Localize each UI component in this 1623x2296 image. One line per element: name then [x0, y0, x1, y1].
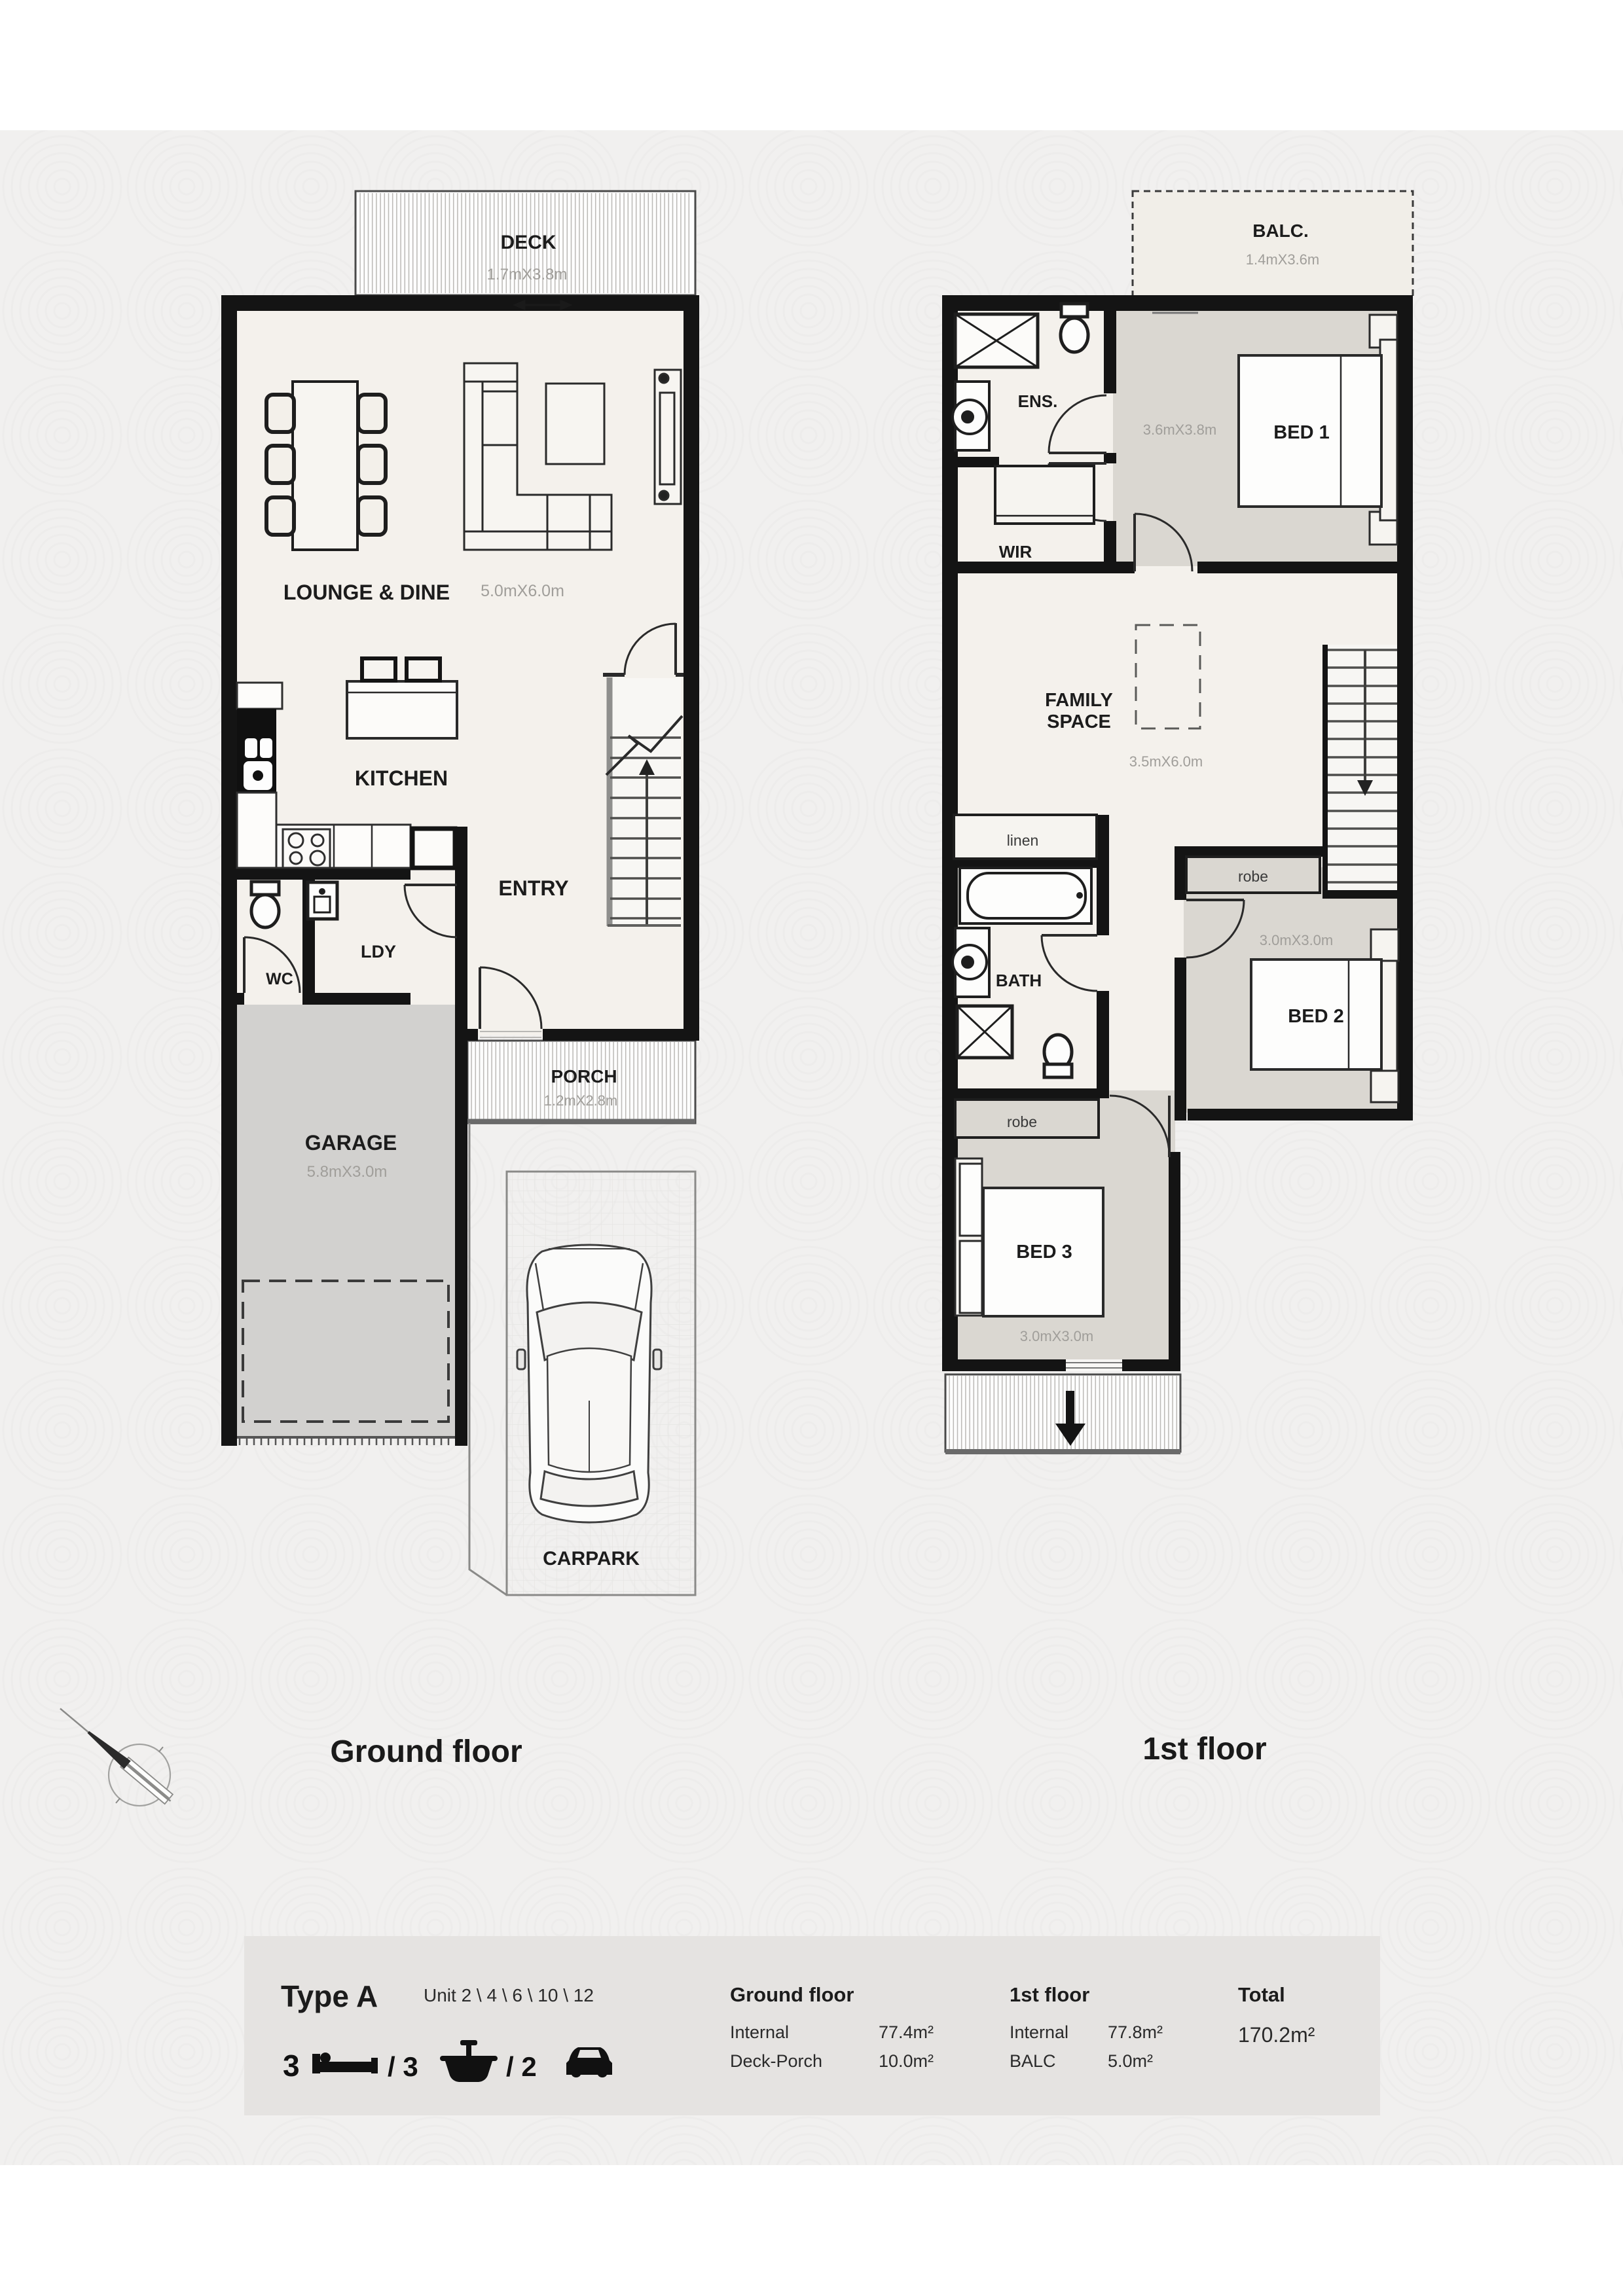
svg-text:1st floor: 1st floor	[1142, 1732, 1266, 1767]
svg-text:Unit 2 \ 4 \ 6 \ 10 \ 12: Unit 2 \ 4 \ 6 \ 10 \ 12	[424, 1985, 594, 2005]
svg-text:CARPARK: CARPARK	[543, 1548, 640, 1570]
svg-text:1st floor: 1st floor	[1010, 1983, 1089, 2006]
svg-text:5.0mX6.0m: 5.0mX6.0m	[481, 582, 564, 600]
svg-text:170.2m²: 170.2m²	[1238, 2023, 1315, 2047]
svg-text:Ground floor: Ground floor	[330, 1734, 522, 1769]
svg-text:Ground floor: Ground floor	[730, 1983, 854, 2006]
svg-text:DECK: DECK	[500, 232, 556, 253]
svg-text:3.6mX3.8m: 3.6mX3.8m	[1143, 422, 1217, 438]
svg-text:LOUNGE & DINE: LOUNGE & DINE	[283, 581, 450, 604]
svg-text:77.8m²: 77.8m²	[1108, 2022, 1163, 2042]
svg-text:3.0mX3.0m: 3.0mX3.0m	[1020, 1328, 1094, 1344]
svg-text:5.0m²: 5.0m²	[1108, 2051, 1153, 2071]
svg-text:1.7mX3.8m: 1.7mX3.8m	[487, 266, 568, 283]
svg-text:BED 1: BED 1	[1273, 422, 1329, 443]
svg-text:Total: Total	[1238, 1983, 1285, 2006]
svg-text:BALC: BALC	[1010, 2051, 1056, 2071]
svg-text:SPACE: SPACE	[1047, 711, 1111, 732]
svg-text:Type A: Type A	[281, 1979, 378, 2013]
svg-text:WC: WC	[266, 970, 293, 988]
svg-text:Internal: Internal	[730, 2022, 789, 2042]
svg-text:KITCHEN: KITCHEN	[355, 766, 448, 790]
svg-text:Internal: Internal	[1010, 2022, 1068, 2042]
svg-text:FAMILY: FAMILY	[1045, 690, 1113, 711]
svg-text:1.2mX2.8m: 1.2mX2.8m	[544, 1092, 618, 1109]
svg-text:linen: linen	[1007, 832, 1039, 849]
svg-text:LDY: LDY	[361, 942, 396, 961]
svg-text:robe: robe	[1238, 868, 1268, 885]
svg-text:3.5mX6.0m: 3.5mX6.0m	[1129, 753, 1203, 770]
svg-text:1.4mX3.6m: 1.4mX3.6m	[1246, 251, 1320, 268]
svg-text:ENTRY: ENTRY	[498, 876, 568, 900]
svg-text:robe: robe	[1007, 1113, 1037, 1130]
svg-text:5.8mX3.0m: 5.8mX3.0m	[307, 1163, 388, 1181]
svg-text:77.4m²: 77.4m²	[879, 2022, 934, 2042]
svg-text:10.0m²: 10.0m²	[879, 2051, 934, 2071]
svg-text:BED 3: BED 3	[1016, 1242, 1072, 1263]
svg-text:PORCH: PORCH	[551, 1066, 617, 1086]
svg-text:BED 2: BED 2	[1288, 1006, 1343, 1027]
svg-text:ENS.: ENS.	[1018, 391, 1058, 411]
svg-text:WIR: WIR	[999, 542, 1032, 562]
svg-text:3: 3	[283, 2049, 300, 2083]
svg-text:/ 3: / 3	[388, 2051, 418, 2082]
svg-text:BALC.: BALC.	[1252, 221, 1309, 241]
svg-text:GARAGE: GARAGE	[305, 1131, 397, 1155]
svg-text:Deck-Porch: Deck-Porch	[730, 2051, 822, 2071]
svg-text:BATH: BATH	[996, 971, 1042, 990]
svg-text:/ 2: / 2	[506, 2051, 537, 2082]
svg-text:3.0mX3.0m: 3.0mX3.0m	[1260, 932, 1334, 948]
